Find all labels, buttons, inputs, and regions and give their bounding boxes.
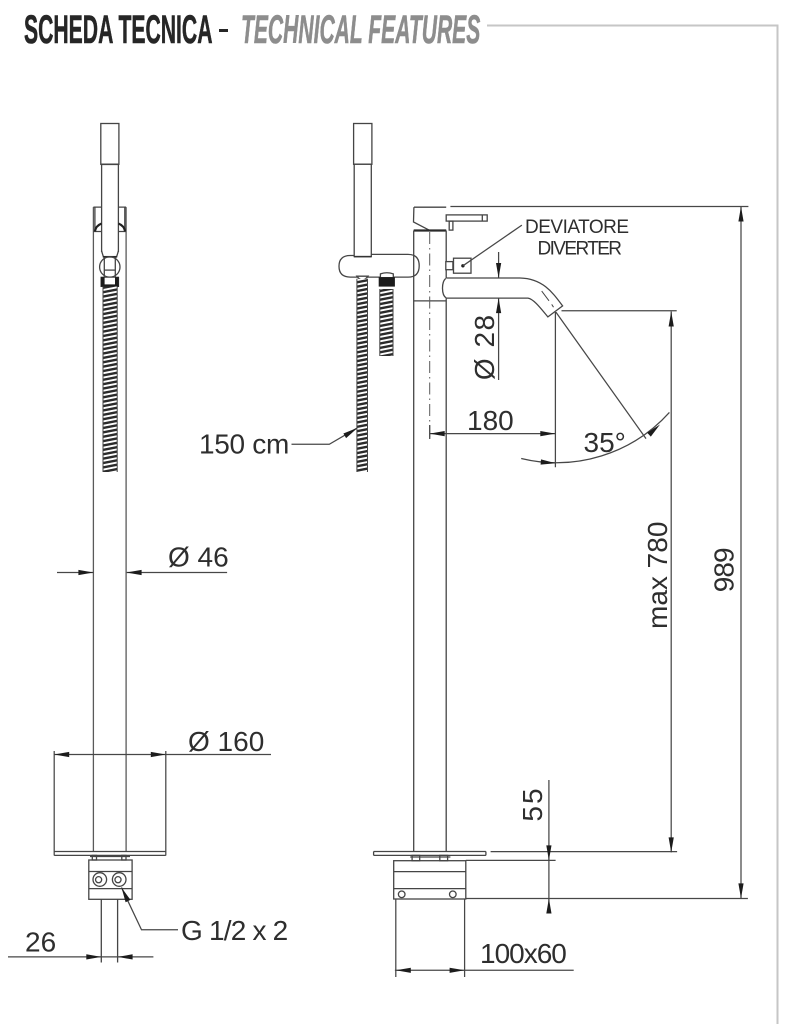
- svg-text:Ø 46: Ø 46: [168, 542, 229, 573]
- svg-text:DIVERTER: DIVERTER: [538, 239, 622, 260]
- svg-text:180: 180: [467, 405, 514, 436]
- svg-text:DEVIATORE: DEVIATORE: [525, 217, 629, 238]
- svg-text:26: 26: [25, 927, 56, 958]
- svg-text:55: 55: [517, 786, 548, 821]
- svg-text:max 780: max 780: [642, 522, 673, 629]
- svg-text:989: 989: [709, 548, 740, 592]
- svg-text:35°: 35°: [584, 427, 626, 458]
- svg-text:100x60: 100x60: [480, 938, 566, 969]
- svg-text:Ø 28: Ø 28: [469, 313, 500, 380]
- svg-text:G 1/2 x 2: G 1/2 x 2: [181, 915, 288, 946]
- svg-text:Ø 160: Ø 160: [188, 726, 264, 757]
- svg-text:150 cm: 150 cm: [199, 428, 289, 459]
